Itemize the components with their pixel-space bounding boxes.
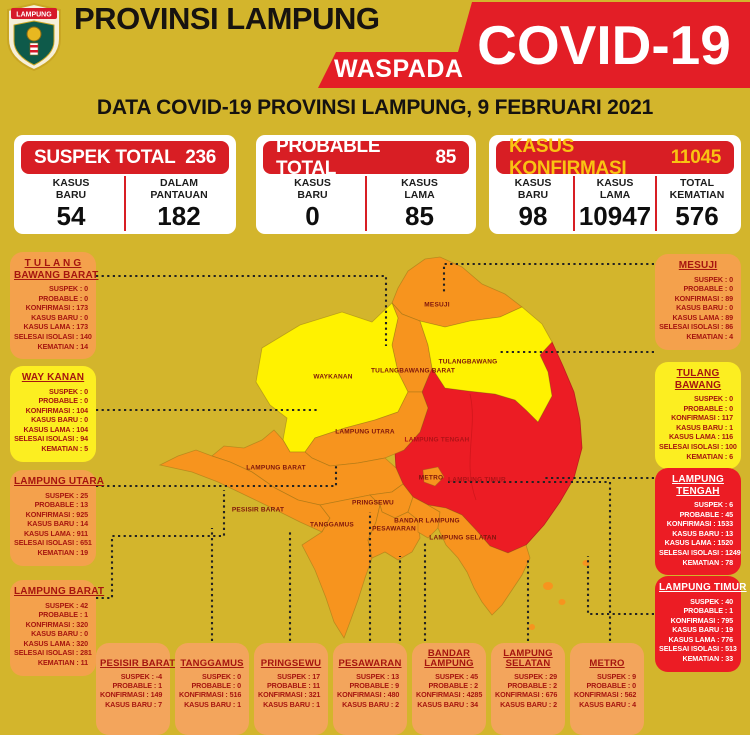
region-box-title-line: PESAWARAN bbox=[337, 659, 403, 669]
stat-label: SUSPEK bbox=[45, 491, 80, 500]
map-label-pesisir-barat: PESISIR BARAT bbox=[232, 507, 284, 514]
stat-value: 2 bbox=[553, 681, 557, 690]
region-box-title-line: LAMPUNG BARAT bbox=[14, 586, 92, 598]
stat-label: SUSPEK bbox=[356, 672, 391, 681]
map-label-tulangbawang-barat: TULANGBAWANG BARAT bbox=[371, 368, 455, 375]
stat-value: 0 bbox=[84, 284, 88, 293]
stat-label: KONFIRMASI bbox=[671, 413, 722, 422]
card-columns: KASUS BARU98KASUS LAMA10947TOTAL KEMATIA… bbox=[493, 176, 737, 231]
stat-row: KASUS BARU0 bbox=[14, 415, 92, 425]
region-box-title-line: LAMPUNG bbox=[416, 659, 482, 669]
stat-row: KASUS BARU0 bbox=[659, 303, 737, 313]
stat-row: SUSPEK13 bbox=[337, 672, 403, 681]
region-box-title-line: LAMPUNG UTARA bbox=[14, 476, 92, 488]
stat-row: PROBABLE0 bbox=[14, 396, 92, 406]
stat-row: KEMATIAN19 bbox=[14, 548, 92, 558]
card-columns: KASUS BARU0KASUS LAMA85 bbox=[260, 176, 472, 231]
stat-label: PROBABLE bbox=[38, 396, 84, 405]
stat-label: PROBABLE bbox=[349, 681, 395, 690]
region-box-title: LAMPUNG UTARA bbox=[14, 476, 92, 488]
stat-row: KASUS LAMA104 bbox=[14, 425, 92, 435]
card-total: 236 bbox=[185, 147, 216, 169]
stat-label: SUSPEK bbox=[202, 672, 237, 681]
stat-value: 1 bbox=[729, 606, 733, 615]
region-box-lampung-tengah: LAMPUNGTENGAH SUSPEK6PROBABLE45KONFIRMAS… bbox=[655, 468, 741, 575]
stat-value: 281 bbox=[80, 648, 92, 657]
map-label-pringsewu: PRINGSEWU bbox=[352, 500, 394, 507]
stat-row: KEMATIAN78 bbox=[659, 558, 737, 568]
stat-label: KONFIRMASI bbox=[416, 690, 467, 699]
stat-row: KONFIRMASI89 bbox=[659, 294, 737, 304]
stat-value: 13 bbox=[391, 672, 399, 681]
stat-value: 1 bbox=[237, 700, 241, 709]
stat-label: SUSPEK bbox=[49, 284, 84, 293]
card-total: 85 bbox=[435, 147, 456, 169]
stat-row: PROBABLE0 bbox=[14, 294, 92, 304]
map-island bbox=[583, 560, 590, 566]
connector-line bbox=[444, 264, 654, 294]
stat-label: KASUS BARU bbox=[184, 700, 237, 709]
lampung-logo: LAMPUNG bbox=[6, 3, 76, 81]
stat-row: KEMATIAN14 bbox=[14, 342, 92, 352]
card-title: KASUS KONFIRMASI bbox=[509, 136, 671, 180]
stat-label: KONFIRMASI bbox=[26, 303, 77, 312]
region-box-title-line: TULANG bbox=[659, 368, 737, 380]
stat-value: 7 bbox=[158, 700, 162, 709]
region-box-lampung-barat: LAMPUNG BARAT SUSPEK42PROBABLE1KONFIRMAS… bbox=[10, 580, 96, 676]
stat-label: KONFIRMASI bbox=[337, 690, 388, 699]
stat-value: 19 bbox=[725, 625, 733, 634]
stat-value: 4285 bbox=[467, 690, 483, 699]
stat-value: 1 bbox=[158, 681, 162, 690]
stat-label: SUSPEK bbox=[597, 672, 632, 681]
card-stat: TOTAL KEMATIAN576 bbox=[655, 176, 737, 231]
stat-label: KEMATIAN bbox=[38, 658, 81, 667]
card-stat: KASUS BARU0 bbox=[260, 176, 365, 231]
stat-value: 1 bbox=[84, 610, 88, 619]
stat-label: KEMATIAN bbox=[686, 332, 729, 341]
stat-label: KONFIRMASI bbox=[675, 294, 726, 303]
stat-value: 14 bbox=[80, 342, 88, 351]
stat-label: KEMATIAN bbox=[38, 548, 81, 557]
map-region-tanggamus bbox=[302, 495, 380, 638]
map-label-tulangbawang: TULANGBAWANG bbox=[439, 359, 498, 366]
stat-row: KONFIRMASI4285 bbox=[416, 690, 482, 699]
stat-value: 45 bbox=[470, 672, 478, 681]
region-box-stats: SUSPEK45PROBABLE2KONFIRMASI4285KASUS BAR… bbox=[416, 672, 482, 709]
stat-label: KONFIRMASI bbox=[671, 616, 722, 625]
region-box-stats: SUSPEK9PROBABLE0KONFIRMASI562KASUS BARU4 bbox=[574, 672, 640, 709]
stat-label: KASUS BARU bbox=[579, 700, 632, 709]
stat-label: KEMATIAN bbox=[38, 342, 81, 351]
stat-row: PROBABLE0 bbox=[574, 681, 640, 690]
stat-label: KONFIRMASI bbox=[26, 510, 77, 519]
stat-row: SUSPEK42 bbox=[14, 601, 92, 611]
stat-label: KONFIRMASI bbox=[100, 690, 151, 699]
region-box-title: PESISIR BARAT bbox=[100, 649, 166, 669]
stat-label: SUSPEK bbox=[277, 672, 312, 681]
card-total: 11045 bbox=[671, 147, 721, 169]
stat-label: SELESAI ISOLASI bbox=[659, 644, 725, 653]
stat-row: PROBABLE45 bbox=[659, 510, 737, 520]
connector-line bbox=[96, 490, 224, 598]
map-region-mesuji bbox=[392, 257, 522, 327]
region-box-title: MESUJI bbox=[659, 260, 737, 272]
stat-row: SELESAI ISOLASI140 bbox=[14, 332, 92, 342]
stat-row: KASUS BARU2 bbox=[337, 700, 403, 709]
region-box-title: LAMPUNG BARAT bbox=[14, 586, 92, 598]
connector-line bbox=[96, 276, 386, 346]
region-box-stats: SUSPEK13PROBABLE9KONFIRMASI480KASUS BARU… bbox=[337, 672, 403, 709]
region-box-metro: METRO SUSPEK9PROBABLE0KONFIRMASI562KASUS… bbox=[570, 643, 644, 735]
stat-row: SUSPEK45 bbox=[416, 672, 482, 681]
stat-value: 42 bbox=[80, 601, 88, 610]
stat-row: SUSPEK29 bbox=[495, 672, 561, 681]
stat-row: PROBABLE0 bbox=[659, 284, 737, 294]
stat-row: KONFIRMASI925 bbox=[14, 510, 92, 520]
stat-value: -4 bbox=[156, 672, 162, 681]
stat-label: KONFIRMASI bbox=[26, 406, 77, 415]
card-stat: KASUS LAMA85 bbox=[365, 176, 472, 231]
card-stat-label: KASUS LAMA bbox=[597, 178, 634, 202]
stat-value: 173 bbox=[76, 322, 88, 331]
card-title: SUSPEK TOTAL bbox=[34, 147, 175, 169]
region-box-stats: SUSPEK42PROBABLE1KONFIRMASI320KASUS BARU… bbox=[14, 601, 92, 668]
stat-value: 5 bbox=[84, 444, 88, 453]
logo-mini-shield bbox=[30, 43, 38, 55]
stat-row: KONFIRMASI676 bbox=[495, 690, 561, 699]
region-box-title-line: T U L A N G bbox=[14, 258, 92, 270]
stat-label: SUSPEK bbox=[694, 394, 729, 403]
stat-value: 0 bbox=[84, 396, 88, 405]
stat-value: 562 bbox=[625, 690, 637, 699]
stat-label: KASUS BARU bbox=[500, 700, 553, 709]
stat-row: KASUS BARU4 bbox=[574, 700, 640, 709]
stat-value: 1533 bbox=[717, 519, 733, 528]
region-box-title: T U L A N GBAWANG BARAT bbox=[14, 258, 92, 281]
stat-value: 0 bbox=[84, 387, 88, 396]
stat-row: SUSPEK0 bbox=[14, 284, 92, 294]
stat-value: 89 bbox=[725, 313, 733, 322]
region-box-stats: SUSPEK0PROBABLE0KONFIRMASI516KASUS BARU1 bbox=[179, 672, 245, 709]
map-region-pesisir-barat bbox=[160, 450, 330, 532]
stat-row: PROBABLE1 bbox=[14, 610, 92, 620]
card-stat-value: 98 bbox=[519, 203, 548, 230]
stat-value: 0 bbox=[237, 681, 241, 690]
region-box-lampung-selatan: LAMPUNGSELATAN SUSPEK29PROBABLE2KONFIRMA… bbox=[491, 643, 565, 735]
stat-row: PROBABLE11 bbox=[258, 681, 324, 690]
stat-row: KASUS LAMA89 bbox=[659, 313, 737, 323]
stat-label: SUSPEK bbox=[49, 387, 84, 396]
stat-row: PROBABLE1 bbox=[100, 681, 166, 690]
stat-label: SELESAI ISOLASI bbox=[659, 322, 725, 331]
stat-label: KASUS BARU bbox=[31, 629, 84, 638]
stat-row: SUSPEK6 bbox=[659, 500, 737, 510]
card-stat: KASUS BARU98 bbox=[493, 176, 573, 231]
stat-row: PROBABLE9 bbox=[337, 681, 403, 690]
stat-label: KASUS BARU bbox=[105, 700, 158, 709]
map-island bbox=[559, 599, 566, 605]
map-label-waykanan: WAYKANAN bbox=[313, 374, 352, 381]
region-box-title: LAMPUNGSELATAN bbox=[495, 649, 561, 669]
region-box-pringsewu: PRINGSEWU SUSPEK17PROBABLE11KONFIRMASI32… bbox=[254, 643, 328, 735]
map-label-bandar-lampung: BANDAR LAMPUNG bbox=[394, 518, 460, 525]
region-box-tulang-bawang: TULANGBAWANG SUSPEK0PROBABLE0KONFIRMASI1… bbox=[655, 362, 741, 469]
stat-value: 0 bbox=[84, 294, 88, 303]
stat-value: 25 bbox=[80, 491, 88, 500]
stat-row: KONFIRMASI117 bbox=[659, 413, 737, 423]
stat-row: PROBABLE2 bbox=[416, 681, 482, 690]
ribbon-covid-label: COVID-19 bbox=[460, 6, 748, 84]
stat-value: 104 bbox=[76, 425, 88, 434]
stat-row: KASUS LAMA911 bbox=[14, 529, 92, 539]
map-island bbox=[543, 582, 553, 590]
stat-label: KONFIRMASI bbox=[258, 690, 309, 699]
stat-value: 480 bbox=[388, 690, 400, 699]
stat-label: KEMATIAN bbox=[41, 444, 84, 453]
card-stat: DALAM PANTAUAN182 bbox=[124, 176, 232, 231]
stat-label: PROBABLE bbox=[191, 681, 237, 690]
stat-value: 9 bbox=[395, 681, 399, 690]
stat-label: KASUS LAMA bbox=[665, 538, 718, 547]
stat-value: 1 bbox=[729, 423, 733, 432]
stat-value: 925 bbox=[76, 510, 88, 519]
stat-value: 11 bbox=[81, 658, 88, 667]
stat-value: 0 bbox=[729, 303, 733, 312]
stat-row: KONFIRMASI795 bbox=[659, 616, 737, 626]
stat-label: KASUS BARU bbox=[417, 700, 470, 709]
stat-row: KASUS LAMA320 bbox=[14, 639, 92, 649]
region-box-title: LAMPUNGTENGAH bbox=[659, 474, 737, 497]
stat-value: 100 bbox=[725, 442, 737, 451]
stat-value: 0 bbox=[729, 404, 733, 413]
stat-label: SELESAI ISOLASI bbox=[14, 332, 80, 341]
stat-value: 173 bbox=[76, 303, 88, 312]
card-header: PROBABLE TOTAL 85 bbox=[263, 141, 469, 174]
region-box-tanggamus: TANGGAMUS SUSPEK0PROBABLE0KONFIRMASI516K… bbox=[175, 643, 249, 735]
stat-value: 14 bbox=[80, 519, 88, 528]
stat-label: PROBABLE bbox=[428, 681, 474, 690]
stat-row: KASUS BARU7 bbox=[100, 700, 166, 709]
map-label-tanggamus: TANGGAMUS bbox=[310, 522, 354, 529]
region-box-stats: SUSPEK40PROBABLE1KONFIRMASI795KASUS BARU… bbox=[659, 597, 737, 664]
stat-value: 2 bbox=[553, 700, 557, 709]
region-box-title: TANGGAMUS bbox=[179, 649, 245, 669]
stat-label: KONFIRMASI bbox=[574, 690, 625, 699]
stat-value: 320 bbox=[76, 639, 88, 648]
stat-row: KONFIRMASI173 bbox=[14, 303, 92, 313]
summary-card-0: SUSPEK TOTAL 236 KASUS BARU54DALAM PANTA… bbox=[14, 135, 236, 234]
stat-label: SELESAI ISOLASI bbox=[14, 648, 80, 657]
card-stat-label: KASUS BARU bbox=[515, 178, 552, 202]
card-stat-label: KASUS BARU bbox=[294, 178, 331, 202]
region-box-pesawaran: PESAWARAN SUSPEK13PROBABLE9KONFIRMASI480… bbox=[333, 643, 407, 735]
connector-line bbox=[448, 482, 610, 641]
stat-row: KONFIRMASI1533 bbox=[659, 519, 737, 529]
card-stat-label: KASUS BARU bbox=[53, 178, 90, 202]
stat-label: SELESAI ISOLASI bbox=[14, 538, 80, 547]
region-box-stats: SUSPEK0PROBABLE0KONFIRMASI89KASUS BARU0K… bbox=[659, 275, 737, 342]
map-label-metro: METRO bbox=[419, 475, 443, 482]
stat-row: PROBABLE2 bbox=[495, 681, 561, 690]
stat-label: SUSPEK bbox=[45, 601, 80, 610]
stat-value: 13 bbox=[80, 500, 88, 509]
stat-value: 0 bbox=[84, 415, 88, 424]
stat-value: 4 bbox=[729, 332, 733, 341]
stat-value: 13 bbox=[725, 529, 733, 538]
stat-value: 1520 bbox=[717, 538, 733, 547]
connector-line bbox=[588, 556, 654, 614]
stat-label: KASUS BARU bbox=[676, 423, 729, 432]
stat-value: 78 bbox=[725, 558, 733, 567]
map-label-lampung-barat: LAMPUNG BARAT bbox=[246, 465, 306, 472]
stat-row: SELESAI ISOLASI94 bbox=[14, 434, 92, 444]
stat-label: KASUS BARU bbox=[672, 529, 725, 538]
connector-lines bbox=[96, 264, 654, 641]
stat-label: KASUS LAMA bbox=[672, 313, 725, 322]
stat-label: KASUS LAMA bbox=[669, 635, 722, 644]
region-box-stats: SUSPEK0PROBABLE0KONFIRMASI173KASUS BARU0… bbox=[14, 284, 92, 351]
subtitle: DATA COVID-19 PROVINSI LAMPUNG, 9 FEBRUA… bbox=[0, 96, 750, 120]
region-box-lampung-utara: LAMPUNG UTARA SUSPEK25PROBABLE13KONFIRMA… bbox=[10, 470, 96, 566]
stat-value: 40 bbox=[725, 597, 733, 606]
stat-value: 11 bbox=[313, 681, 320, 690]
stat-value: 94 bbox=[80, 434, 88, 443]
map-region-pesawaran bbox=[368, 505, 420, 560]
stat-label: KONFIRMASI bbox=[26, 620, 77, 629]
region-box-title-line: BAWANG bbox=[659, 380, 737, 392]
logo-stripe bbox=[30, 50, 38, 53]
map-label-lampung-timur: LAMPUNG TIMUR bbox=[448, 477, 506, 484]
stat-label: PROBABLE bbox=[38, 610, 84, 619]
stat-row: PROBABLE1 bbox=[659, 606, 737, 616]
logo-banner-label: LAMPUNG bbox=[16, 12, 52, 19]
stat-value: 776 bbox=[721, 635, 733, 644]
summary-card-2: KASUS KONFIRMASI 11045 KASUS BARU98KASUS… bbox=[489, 135, 741, 234]
stat-row: KASUS LAMA1520 bbox=[659, 538, 737, 548]
stat-value: 4 bbox=[632, 700, 636, 709]
stat-value: 6 bbox=[729, 452, 733, 461]
stat-value: 19 bbox=[80, 548, 88, 557]
stat-label: KEMATIAN bbox=[683, 558, 726, 567]
stat-row: SELESAI ISOLASI513 bbox=[659, 644, 737, 654]
region-box-stats: SUSPEK29PROBABLE2KONFIRMASI676KASUS BARU… bbox=[495, 672, 561, 709]
region-box-title-line: LAMPUNG bbox=[659, 474, 737, 486]
stat-row: KASUS BARU1 bbox=[659, 423, 737, 433]
stat-label: PROBABLE bbox=[683, 606, 729, 615]
stat-value: 0 bbox=[84, 629, 88, 638]
stat-label: KASUS LAMA bbox=[24, 529, 77, 538]
stat-row: KONFIRMASI321 bbox=[258, 690, 324, 699]
card-stat-value: 0 bbox=[305, 203, 319, 230]
stat-row: KASUS BARU13 bbox=[659, 529, 737, 539]
map-region-tulang-bawang-barat bbox=[392, 303, 432, 392]
card-header: SUSPEK TOTAL 236 bbox=[21, 141, 229, 174]
stat-value: 0 bbox=[729, 284, 733, 293]
card-stat-value: 54 bbox=[57, 203, 86, 230]
region-box-title: PRINGSEWU bbox=[258, 649, 324, 669]
region-box-title-line: SELATAN bbox=[495, 659, 561, 669]
stat-label: PROBABLE bbox=[38, 294, 84, 303]
stat-label: SUSPEK bbox=[514, 672, 549, 681]
stat-value: 0 bbox=[237, 672, 241, 681]
stat-value: 6 bbox=[729, 500, 733, 509]
stat-value: 676 bbox=[546, 690, 558, 699]
stat-row: KASUS BARU0 bbox=[14, 629, 92, 639]
stat-row: KEMATIAN6 bbox=[659, 452, 737, 462]
logo-emblem-circle bbox=[27, 27, 41, 41]
region-box-mesuji: MESUJI SUSPEK0PROBABLE0KONFIRMASI89KASUS… bbox=[655, 254, 741, 350]
stat-row: SUSPEK40 bbox=[659, 597, 737, 607]
stat-row: SELESAI ISOLASI281 bbox=[14, 648, 92, 658]
stat-label: KASUS BARU bbox=[263, 700, 316, 709]
stat-label: KASUS BARU bbox=[27, 519, 80, 528]
stat-row: SUSPEK0 bbox=[659, 394, 737, 404]
region-box-bandar-lampung: BANDARLAMPUNG SUSPEK45PROBABLE2KONFIRMAS… bbox=[412, 643, 486, 735]
stat-label: PROBABLE bbox=[35, 500, 81, 509]
region-box-title-line: MESUJI bbox=[659, 260, 737, 272]
stat-row: KASUS BARU0 bbox=[14, 313, 92, 323]
stat-row: SUSPEK25 bbox=[14, 491, 92, 501]
stat-value: 86 bbox=[725, 322, 733, 331]
stat-row: SUSPEK9 bbox=[574, 672, 640, 681]
region-box-stats: SUSPEK6PROBABLE45KONFIRMASI1533KASUS BAR… bbox=[659, 500, 737, 567]
region-box-title: METRO bbox=[574, 649, 640, 669]
stat-row: KASUS BARU19 bbox=[659, 625, 737, 635]
stat-row: KASUS LAMA173 bbox=[14, 322, 92, 332]
region-box-title: BANDARLAMPUNG bbox=[416, 649, 482, 669]
stat-row: SELESAI ISOLASI1249 bbox=[659, 548, 737, 558]
region-box-stats: SUSPEK0PROBABLE0KONFIRMASI104KASUS BARU0… bbox=[14, 387, 92, 454]
stat-row: KASUS BARU1 bbox=[179, 700, 245, 709]
region-box-title-line: PESISIR BARAT bbox=[100, 659, 166, 669]
card-title: PROBABLE TOTAL bbox=[276, 136, 435, 180]
region-box-title-line: PRINGSEWU bbox=[258, 659, 324, 669]
stat-value: 140 bbox=[80, 332, 92, 341]
stat-value: 321 bbox=[309, 690, 321, 699]
card-stat-value: 10947 bbox=[579, 203, 651, 230]
stat-value: 45 bbox=[725, 510, 733, 519]
stat-row: SELESAI ISOLASI100 bbox=[659, 442, 737, 452]
stat-row: KEMATIAN5 bbox=[14, 444, 92, 454]
stat-label: KASUS BARU bbox=[31, 415, 84, 424]
region-box-stats: SUSPEK17PROBABLE11KONFIRMASI321KASUS BAR… bbox=[258, 672, 324, 709]
stat-row: KONFIRMASI149 bbox=[100, 690, 166, 699]
stat-label: KONFIRMASI bbox=[667, 519, 718, 528]
stat-value: 651 bbox=[80, 538, 92, 547]
stat-label: SELESAI ISOLASI bbox=[659, 442, 725, 451]
region-box-title-line: TENGAH bbox=[659, 486, 737, 498]
stat-row: KASUS BARU34 bbox=[416, 700, 482, 709]
stat-row: KEMATIAN4 bbox=[659, 332, 737, 342]
stat-value: 795 bbox=[721, 616, 733, 625]
stat-label: SELESAI ISOLASI bbox=[659, 548, 725, 557]
logo-stripe bbox=[30, 45, 38, 48]
card-stat-value: 182 bbox=[157, 203, 200, 230]
stat-value: 0 bbox=[84, 313, 88, 322]
stat-label: SUSPEK bbox=[694, 500, 729, 509]
stat-label: SUSPEK bbox=[694, 275, 729, 284]
map-label-pesawaran: PESAWARAN bbox=[372, 526, 416, 533]
summary-card-1: PROBABLE TOTAL 85 KASUS BARU0KASUS LAMA8… bbox=[256, 135, 476, 234]
region-box-title-line: METRO bbox=[574, 659, 640, 669]
stat-row: SUSPEK0 bbox=[179, 672, 245, 681]
stat-label: PROBABLE bbox=[680, 510, 726, 519]
ribbon-waspada-label: WASPADA bbox=[334, 55, 460, 84]
region-box-way-kanan: WAY KANAN SUSPEK0PROBABLE0KONFIRMASI104K… bbox=[10, 366, 96, 462]
map-label-lampung-selatan: LAMPUNG SELATAN bbox=[429, 535, 496, 542]
stat-label: KASUS BARU bbox=[342, 700, 395, 709]
